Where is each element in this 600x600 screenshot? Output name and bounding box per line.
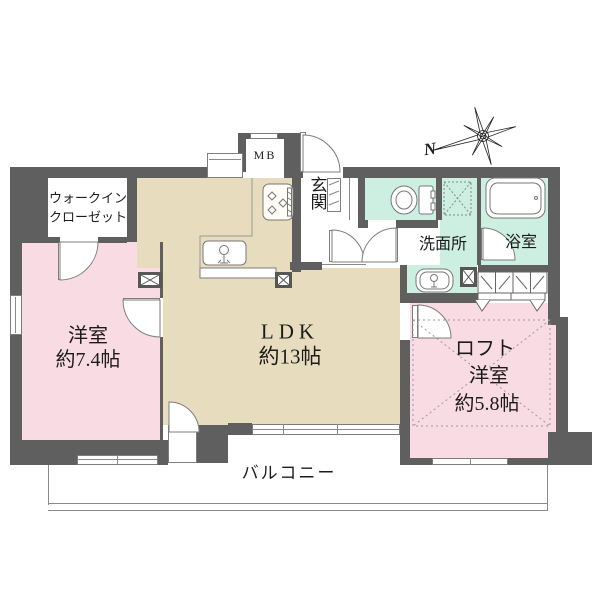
compass-rose-icon <box>433 107 516 165</box>
window-bedroom-east-div <box>470 458 471 465</box>
bath-door-leaf <box>481 228 486 260</box>
wall-ldk-bedroom-east <box>400 340 410 458</box>
window-top-nook <box>207 153 243 178</box>
balcony-label: バルコニー <box>242 465 337 482</box>
window-ldk-div2 <box>337 424 338 435</box>
meter-box-label: MB <box>254 149 277 161</box>
compass-north-label: N <box>423 140 438 159</box>
entrance-door-leaf <box>300 132 306 172</box>
toilet-room-floor <box>365 177 436 220</box>
washroom-label: 洗面所 <box>419 237 467 253</box>
hall-ldk-step-line <box>322 264 366 265</box>
wic-door-leaf <box>58 242 63 280</box>
wall-balcony-door-block <box>196 425 228 463</box>
wall-wic-bottom-l <box>22 237 60 243</box>
balcony-outline-bottom <box>48 503 548 504</box>
wall-hall-west <box>292 178 301 272</box>
wall-top-east <box>343 167 560 178</box>
balcony-outline-right <box>547 465 548 511</box>
wall-bedroom-west-bottom-l <box>10 455 77 465</box>
window-left-glass-line <box>15 297 16 333</box>
window-bedroom-west-div <box>117 455 118 465</box>
entrance-label: 玄関 <box>309 176 326 210</box>
window-ldk-glass-line <box>253 429 399 430</box>
bedroom-east-name: 洋室 <box>469 366 509 386</box>
bedroom-east-door-leaf <box>412 305 418 338</box>
wall-top-west <box>10 167 207 178</box>
bedroom-east-size: 約5.8帖 <box>455 394 520 414</box>
wall-toilet-washroom <box>436 178 442 220</box>
balcony-outline-bottom2 <box>48 510 548 511</box>
toilet-door-leaf <box>394 228 398 262</box>
bedroom-east-floor-ext <box>548 325 556 432</box>
floor-plan: ウォークイン クローゼット 洋室 約7.4帖 LDK 約13帖 玄関 洗面所 浴… <box>0 0 600 600</box>
bedroom-west-door-leaf <box>123 298 160 303</box>
bedroom-west-name: 洋室 <box>68 326 108 346</box>
shoe-cabinet <box>327 178 341 212</box>
wall-washroom-south <box>400 293 478 303</box>
wall-bedroom-west-ldk-lower <box>160 337 163 440</box>
window-top-nook-line <box>209 159 241 160</box>
wall-right-lower <box>556 325 568 432</box>
wall-right-upper <box>548 167 560 317</box>
bathroom-label: 浴室 <box>505 235 537 251</box>
bedroom-west-size: 約7.4帖 <box>56 350 121 370</box>
walk-in-closet-floor <box>48 178 127 237</box>
loft-label: ロフト <box>455 339 515 359</box>
ldk-floor-mid <box>163 242 292 268</box>
entrance-step-line <box>349 178 350 220</box>
wall-corner-block-se <box>548 432 592 465</box>
wall-bedroom-west-bottom <box>10 440 168 455</box>
hall-door-leaf <box>329 230 333 262</box>
wall-wic-bottom-r <box>98 237 127 243</box>
wall-bath-closet <box>478 265 560 272</box>
wall-bedroom-west-ldk-upper <box>160 242 163 298</box>
wall-wic-east <box>127 178 137 242</box>
ldk-name: LDK <box>261 322 319 343</box>
washroom-floor-upper <box>440 177 477 293</box>
wall-hall-ldk-block <box>290 262 322 270</box>
wall-toilet-bottom-l <box>358 220 368 228</box>
ldk-size: 約13帖 <box>259 347 322 368</box>
washroom-floor-lower <box>407 265 440 293</box>
meter-box-door <box>250 133 278 139</box>
wall-wic-west <box>22 178 48 242</box>
wall-ldk-bottom <box>228 423 252 435</box>
walk-in-closet-label-line1: ウォークイン <box>49 192 127 205</box>
wall-right-step <box>548 317 568 325</box>
entrance-door-arc <box>303 135 340 172</box>
bathroom-floor <box>481 177 548 265</box>
balcony-outline-left <box>48 463 49 505</box>
walk-in-closet-label-line2: クローゼット <box>49 211 127 224</box>
balcony-door-passage <box>168 425 197 463</box>
window-ldk-div1 <box>283 424 284 435</box>
window-left-wall <box>10 295 22 335</box>
wall-ldk-washroom <box>400 265 407 303</box>
wall-bedroom-west-bottom-r <box>158 455 168 465</box>
wall-toilet-bottom-r <box>396 220 438 228</box>
